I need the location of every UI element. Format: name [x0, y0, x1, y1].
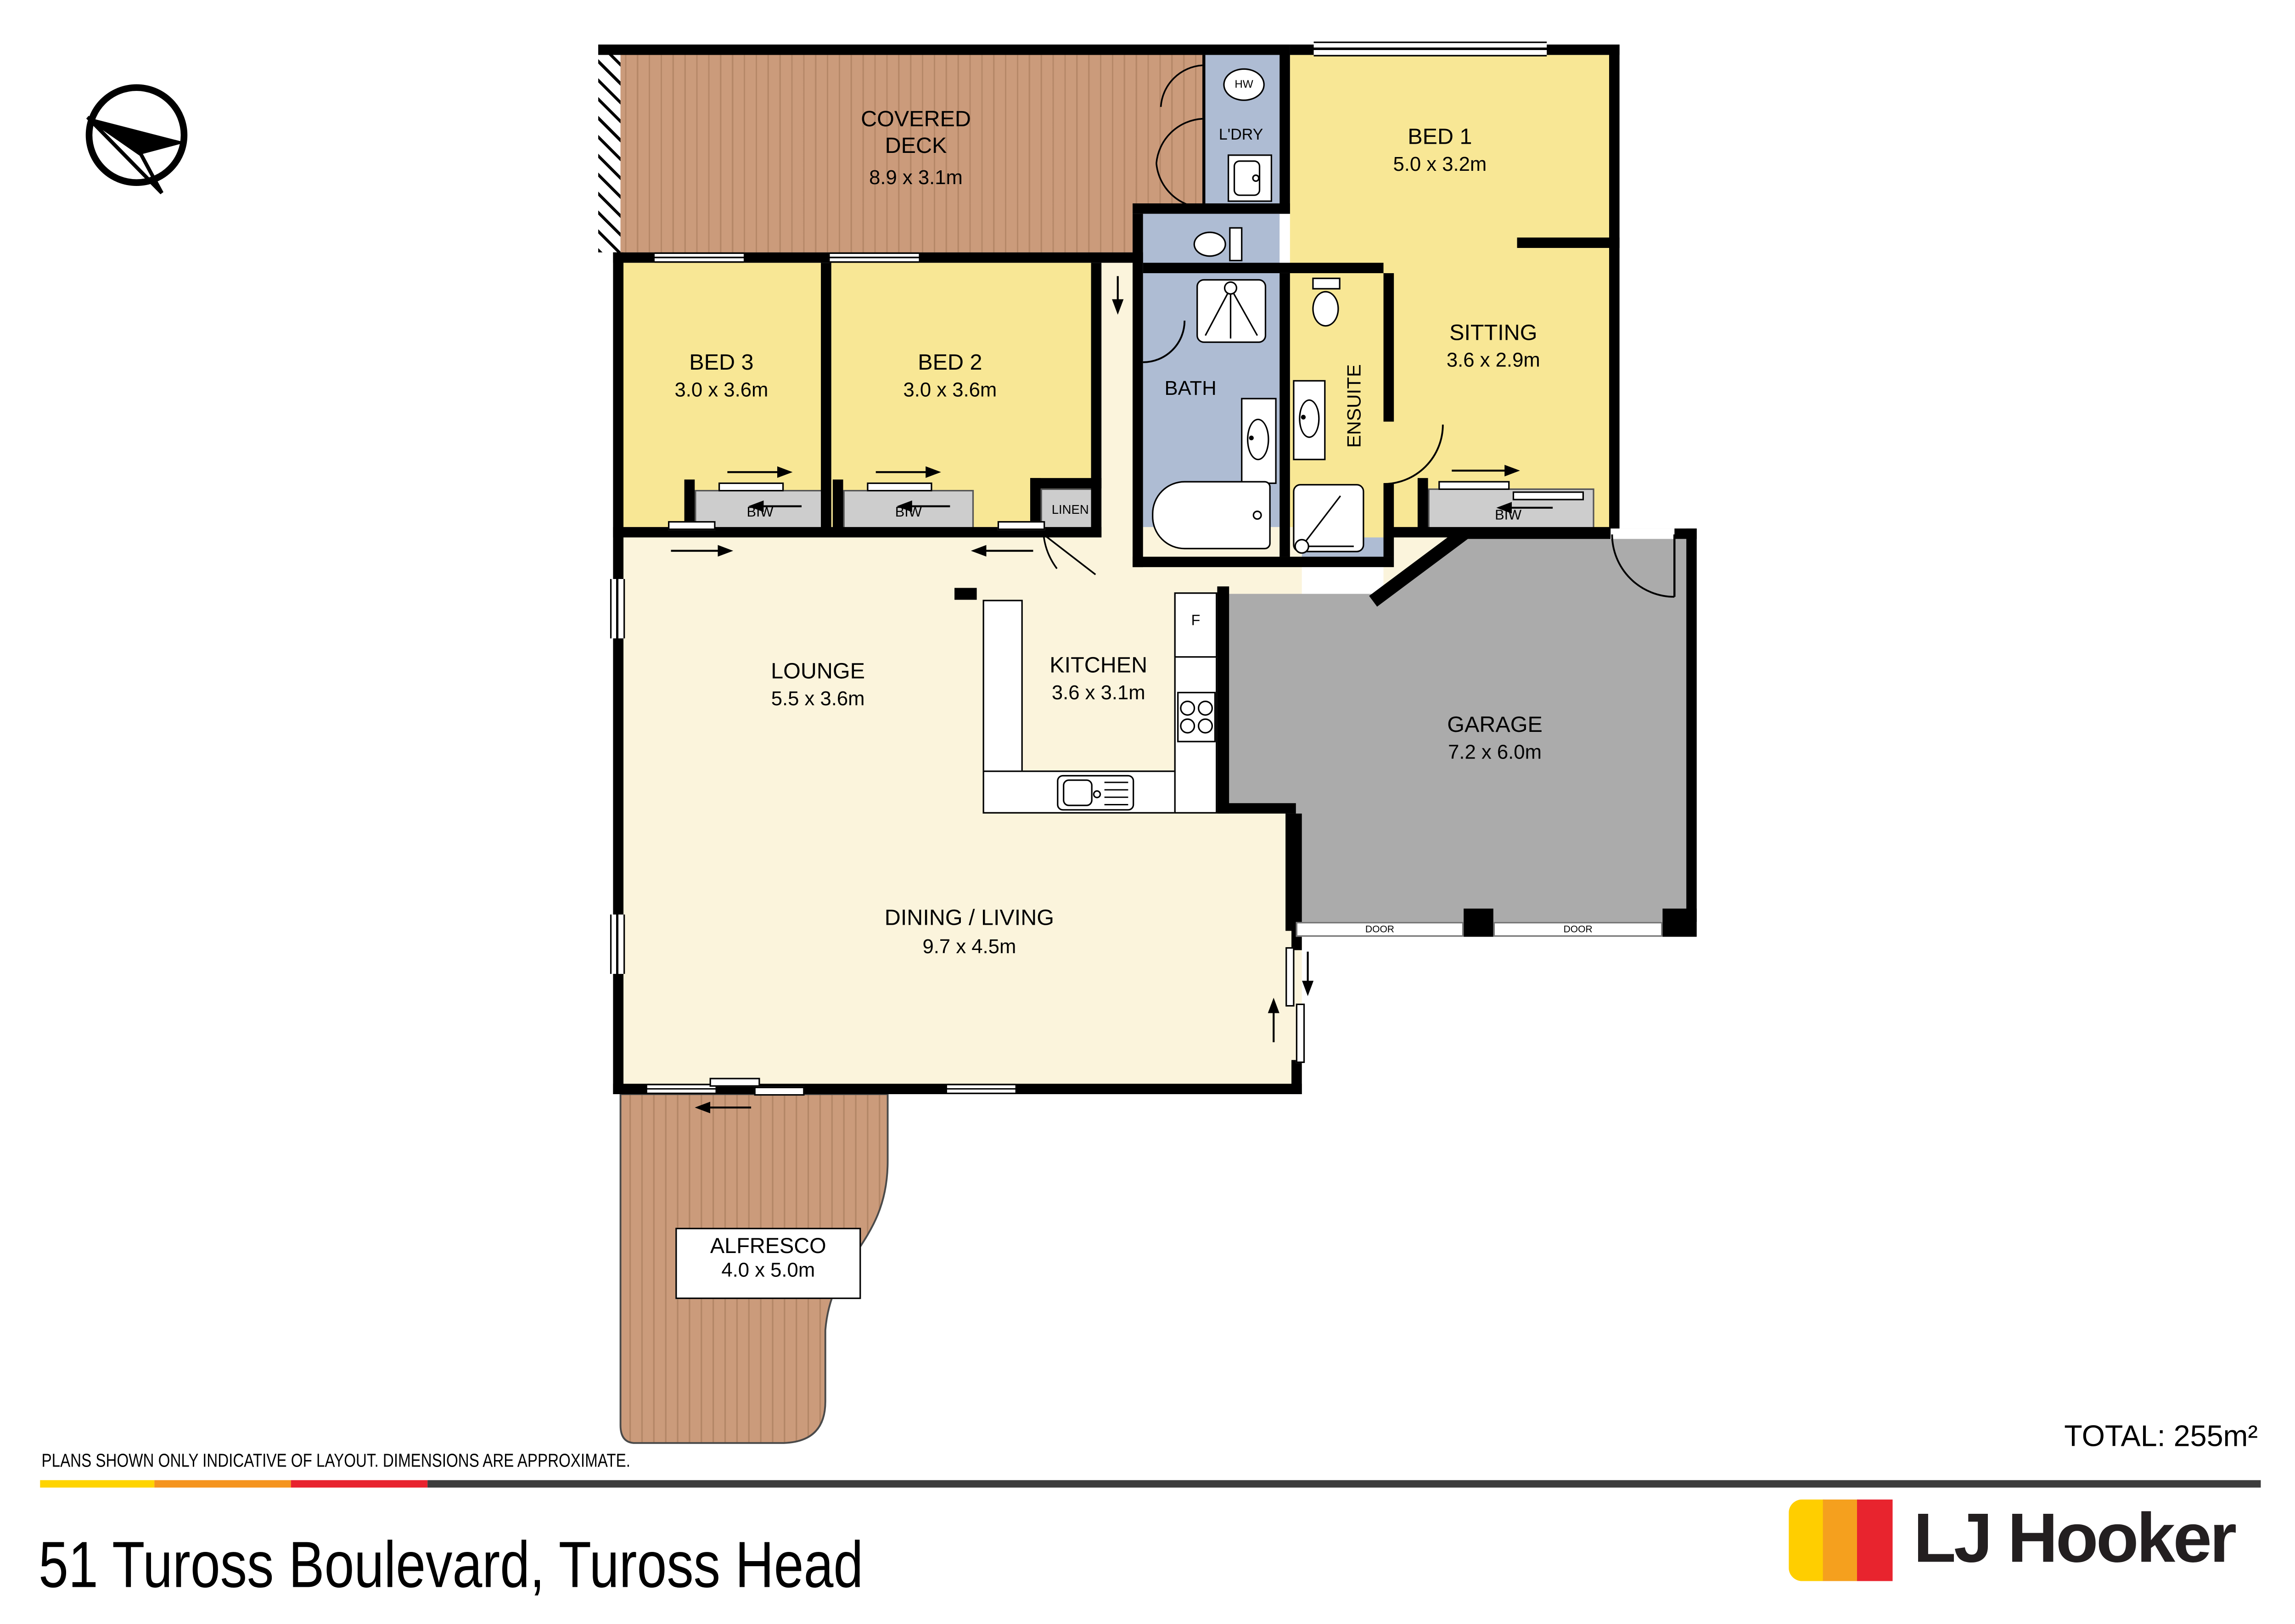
label-fridge: F	[1180, 613, 1212, 629]
label-deck: COVERED DECK	[834, 107, 998, 161]
label-laundry: L'DRY	[1196, 126, 1285, 144]
door-arc-ensuite	[1384, 425, 1443, 484]
kitchen-sink-drain	[1094, 791, 1100, 798]
bath-shower-lines	[1206, 288, 1257, 338]
north-arrow-icon	[82, 82, 195, 195]
brand-stripe-orange	[1823, 1500, 1859, 1581]
label-garage: GARAGE	[1376, 713, 1613, 740]
rule-orange	[154, 1480, 291, 1487]
laundry-tub-drain	[1253, 175, 1259, 181]
disclaimer-text: PLANS SHOWN ONLY INDICATIVE OF LAYOUT. D…	[42, 1450, 630, 1471]
address: 51 Tuross Boulevard, Tuross Head	[39, 1534, 1044, 1599]
label-kitchen: KITCHEN	[980, 653, 1217, 680]
ensuite-basin-tap	[1301, 415, 1306, 419]
door-arc-deck-2	[1156, 119, 1202, 208]
dims-alfresco: 4.0 x 5.0m	[677, 1259, 859, 1281]
label-lounge: LOUNGE	[699, 659, 937, 686]
rule-dark	[427, 1480, 2261, 1487]
dims-bed2: 3.0 x 3.6m	[846, 379, 1054, 401]
door-line-linen	[1044, 534, 1095, 574]
label-bath: BATH	[1143, 377, 1238, 399]
dims-sitting: 3.6 x 2.9m	[1375, 349, 1612, 371]
label-sitting: SITTING	[1375, 320, 1612, 348]
annotation-layer	[0, 0, 2295, 1624]
ensuite-shower-lines	[1302, 496, 1354, 546]
burner-3	[1181, 719, 1195, 733]
brand-logo: LJ Hooker	[1789, 1496, 2278, 1585]
address-text: 51 Tuross Boulevard, Tuross Head	[39, 1534, 863, 1599]
bath-shower-head	[1225, 282, 1237, 294]
sink-drainer-lines	[1105, 782, 1128, 805]
label-ensuite: ENSUITE	[1343, 345, 1365, 467]
total-area: TOTAL: 255m²	[2064, 1421, 2258, 1455]
label-bed2: BED 2	[846, 350, 1054, 377]
dims-bed3: 3.0 x 3.6m	[617, 379, 825, 401]
bathtub-drain	[1253, 511, 1261, 519]
burner-4	[1199, 719, 1212, 733]
dims-garage: 7.2 x 6.0m	[1376, 741, 1613, 763]
brand-stripe-red	[1857, 1500, 1893, 1581]
dims-bed1: 5.0 x 3.2m	[1321, 153, 1559, 175]
label-biw-bed2: BIW	[864, 505, 953, 521]
door-arc-deck-1	[1161, 65, 1203, 107]
disclaimer: PLANS SHOWN ONLY INDICATIVE OF LAYOUT. D…	[42, 1450, 760, 1471]
label-linen: LINEN	[1038, 502, 1103, 517]
label-biw-bed3: BIW	[715, 505, 804, 521]
brand-stripes	[1789, 1500, 1892, 1581]
alfresco-label-box: ALFRESCO 4.0 x 5.0m	[675, 1228, 861, 1299]
rule-red	[291, 1480, 427, 1487]
ensuite-shower-head	[1295, 539, 1308, 553]
brand-name: LJ Hooker	[1913, 1496, 2235, 1578]
bath-basin-tap	[1249, 436, 1254, 440]
dims-lounge: 5.5 x 3.6m	[699, 687, 937, 710]
label-bed3: BED 3	[617, 350, 825, 377]
label-biw-sitting: BIW	[1464, 508, 1553, 524]
label-alfresco: ALFRESCO	[677, 1235, 859, 1259]
label-hw: HW	[1223, 77, 1265, 90]
dims-kitchen: 3.6 x 3.1m	[980, 681, 1217, 704]
door-arc-bath	[1143, 320, 1185, 362]
footer-rule	[40, 1480, 2261, 1487]
floorplan-page: DOOR DOOR	[0, 0, 2295, 1624]
dims-deck: 8.9 x 3.1m	[797, 166, 1034, 189]
dims-dining: 9.7 x 4.5m	[851, 935, 1088, 958]
label-bed1: BED 1	[1321, 125, 1559, 152]
door-arc-front	[1612, 534, 1674, 597]
rule-yellow	[40, 1480, 154, 1487]
brand-stripe-yellow	[1789, 1500, 1824, 1581]
label-dining: DINING / LIVING	[851, 905, 1088, 933]
